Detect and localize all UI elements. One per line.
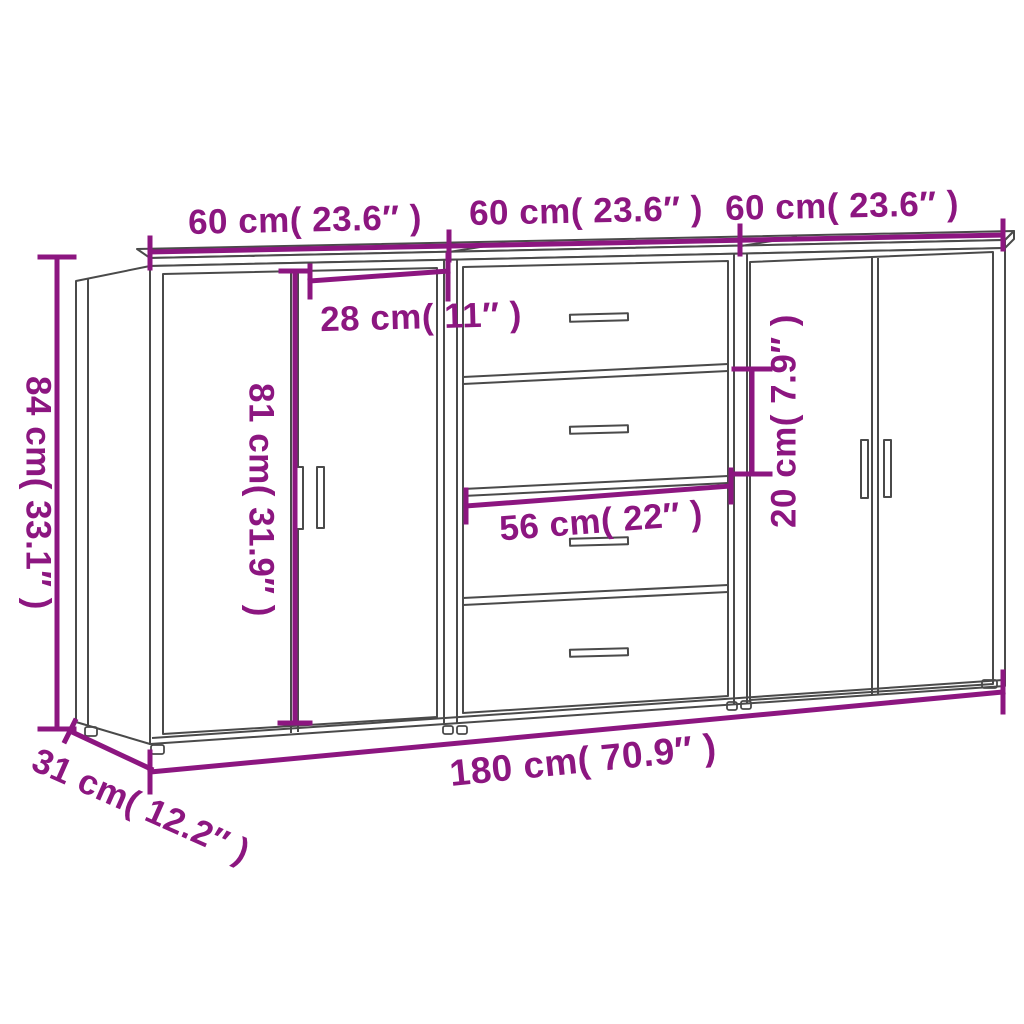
drawer-handle-1	[570, 313, 628, 322]
product-dimension-diagram: 60 cm( 23.6″ ) 60 cm( 23.6″ ) 60 cm( 23.…	[0, 0, 1024, 1024]
unit3-left-door-handle	[861, 440, 868, 498]
foot	[457, 726, 467, 734]
unit1-right-door-handle	[317, 467, 324, 528]
drawer-handle-4	[570, 648, 628, 657]
dim-label-drawer-height: 20 cm( 7.9″ )	[767, 314, 802, 528]
dim-label-unit2-width: 60 cm( 23.6″ )	[469, 191, 704, 231]
dim-label-door-width: 28 cm( 11″ )	[320, 297, 523, 337]
unit3-right-door-handle	[884, 440, 891, 497]
foot	[443, 726, 453, 734]
sideboard-line-art	[76, 231, 1014, 754]
foot	[151, 745, 164, 754]
dim-label-unit1-width: 60 cm( 23.6″ )	[188, 200, 423, 240]
dim-label-total-height: 84 cm( 33.1″ )	[21, 376, 56, 610]
dim-label-unit3-width: 60 cm( 23.6″ )	[725, 186, 960, 226]
drawer-handle-2	[570, 425, 628, 434]
dim-label-door-height: 81 cm( 31.9″ )	[244, 383, 279, 617]
